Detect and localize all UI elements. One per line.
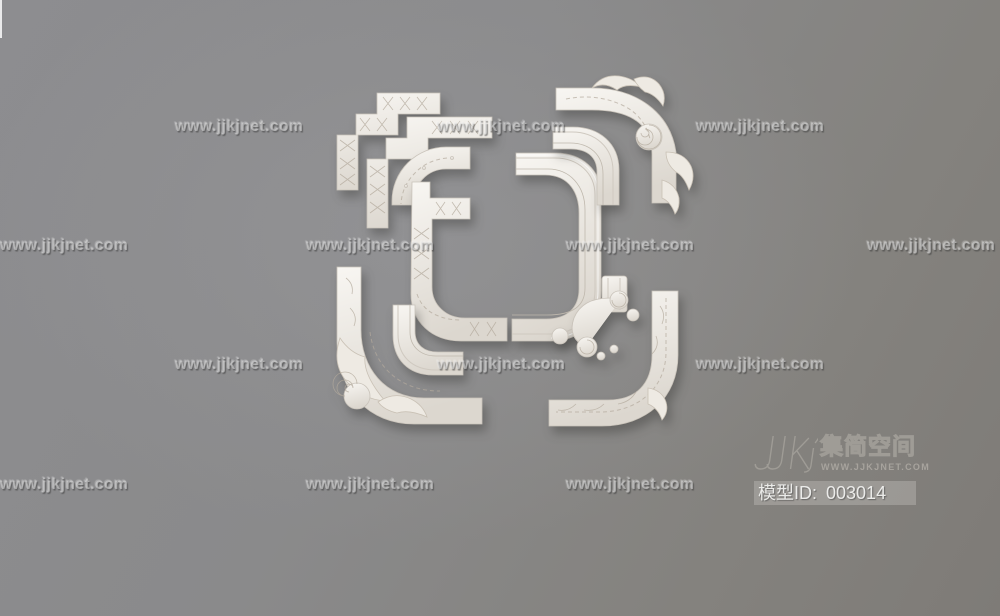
molding-scene [0, 0, 1000, 616]
jjkj-logo-icon [754, 430, 818, 480]
brand-name: 集简空间 [820, 433, 920, 459]
brand-site: WWW.JJKJNET.COM [821, 462, 930, 472]
edge-artifact [0, 0, 2, 38]
render-canvas: www.jjkjnet.comwww.jjkjnet.comwww.jjkjne… [0, 0, 1000, 616]
model-id-value: 003014 [826, 483, 886, 503]
model-id-label: 模型ID: [758, 483, 817, 503]
molding-frame-bracket-left [411, 182, 507, 341]
model-id-badge: 模型ID:003014 [754, 481, 916, 505]
